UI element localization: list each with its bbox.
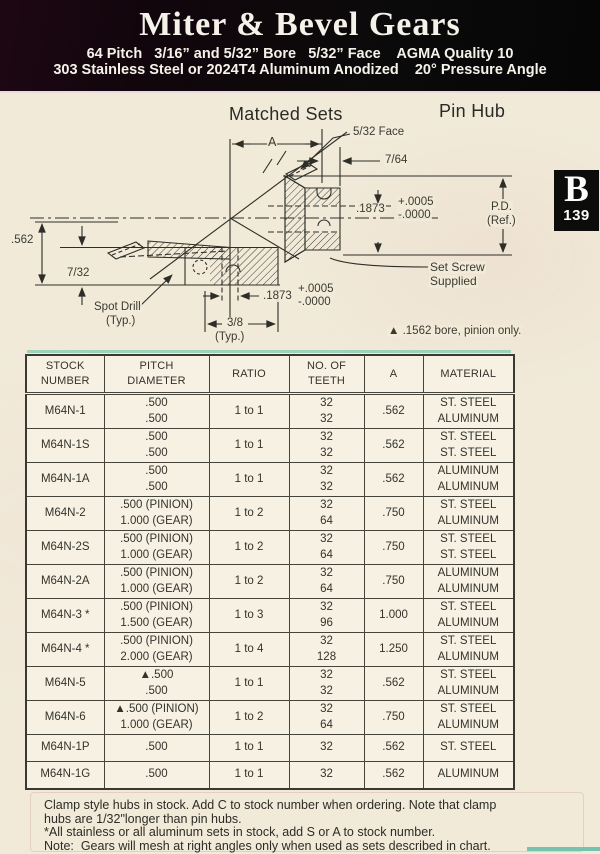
cell-pitch-diameter: ▲.500 .500 xyxy=(104,667,209,701)
cell-a: .750 xyxy=(364,701,423,735)
label-bore-tol-minus-lower: -.0000 xyxy=(297,296,332,308)
cell-teeth: 32 xyxy=(289,735,364,762)
label-pinion-bore-note: ▲ .1562 bore, pinion only. xyxy=(387,325,522,337)
cell-ratio: 1 to 1 xyxy=(209,667,289,701)
cell-pitch-diameter: .500 (PINION) 2.000 (GEAR) xyxy=(104,633,209,667)
technical-drawing: Matched SetsPin Hub5/32 FaceA7/64.1873+.… xyxy=(0,95,600,353)
cell-stock-number: M64N-3 * xyxy=(26,599,104,633)
table-row: M64N-1P.5001 to 132.562ST. STEEL xyxy=(26,735,514,762)
cell-pitch-diameter: .500 (PINION) 1.000 (GEAR) xyxy=(104,565,209,599)
col-ratio: RATIO xyxy=(209,355,289,394)
label-face-dim: 5/32 Face xyxy=(352,126,405,138)
label-hub-proj-dim: 7/64 xyxy=(384,154,408,166)
cell-teeth: 32 128 xyxy=(289,633,364,667)
cell-teeth: 32 xyxy=(289,762,364,790)
cell-material: ST. STEEL ALUMINUM xyxy=(423,394,514,429)
cell-ratio: 1 to 2 xyxy=(209,701,289,735)
label-set-screw-label-1: Set Screw xyxy=(429,261,486,274)
cell-material: ST. STEEL ALUMINUM xyxy=(423,599,514,633)
cell-a: .562 xyxy=(364,667,423,701)
header-banner: Miter & Bevel Gears 64 Pitch 3/16” and 5… xyxy=(0,0,600,93)
cell-a: 1.000 xyxy=(364,599,423,633)
table-row: M64N-2A.500 (PINION) 1.000 (GEAR)1 to 23… xyxy=(26,565,514,599)
table-row: M64N-2S.500 (PINION) 1.000 (GEAR)1 to 23… xyxy=(26,531,514,565)
cell-ratio: 1 to 2 xyxy=(209,497,289,531)
table-row: M64N-1.500 .5001 to 132 32.562ST. STEEL … xyxy=(26,394,514,429)
table-row: M64N-1A.500 .5001 to 132 32.562ALUMINUM … xyxy=(26,463,514,497)
label-bore-tol-plus-upper: +.0005 xyxy=(397,196,435,208)
cell-material: ALUMINUM ALUMINUM xyxy=(423,463,514,497)
label-a-dim: A xyxy=(267,136,277,150)
label-matched-sets-title: Matched Sets xyxy=(228,105,344,124)
cell-stock-number: M64N-5 xyxy=(26,667,104,701)
cell-ratio: 1 to 1 xyxy=(209,762,289,790)
cell-pitch-diameter: .500 .500 xyxy=(104,463,209,497)
label-pin-hub-title: Pin Hub xyxy=(438,102,506,121)
cell-a: .750 xyxy=(364,565,423,599)
col-pitch-diameter: PITCH DIAMETER xyxy=(104,355,209,394)
cell-ratio: 1 to 1 xyxy=(209,735,289,762)
cell-pitch-diameter: .500 xyxy=(104,735,209,762)
cell-teeth: 32 32 xyxy=(289,429,364,463)
cell-teeth: 32 32 xyxy=(289,667,364,701)
catalog-page: { "header": { "title": "Miter & Bevel Ge… xyxy=(0,0,600,852)
cell-pitch-diameter: ▲.500 (PINION) 1.000 (GEAR) xyxy=(104,701,209,735)
label-od-dim: .562 xyxy=(10,234,34,246)
label-hub-height-dim: 7/32 xyxy=(66,267,90,279)
label-bore-dim-upper: .1873 xyxy=(355,203,386,215)
cell-ratio: 1 to 1 xyxy=(209,429,289,463)
note-stainless-aluminum: *All stainless or all aluminum sets in s… xyxy=(44,826,554,840)
table-row: M64N-3 *.500 (PINION) 1.500 (GEAR)1 to 3… xyxy=(26,599,514,633)
cell-material: ST. STEEL ST. STEEL xyxy=(423,429,514,463)
cell-material: ST. STEEL xyxy=(423,735,514,762)
table-row: M64N-1S.500 .5001 to 132 32.562ST. STEEL… xyxy=(26,429,514,463)
cell-teeth: 32 64 xyxy=(289,701,364,735)
cell-ratio: 1 to 1 xyxy=(209,463,289,497)
label-spot-drill-typ: (Typ.) xyxy=(105,315,136,327)
cell-stock-number: M64N-1 xyxy=(26,394,104,429)
label-pd-ref-label: (Ref.) xyxy=(486,215,517,227)
label-bore-tol-plus-lower: +.0005 xyxy=(297,283,335,295)
cell-material: ST. STEEL ST. STEEL xyxy=(423,531,514,565)
cell-ratio: 1 to 1 xyxy=(209,394,289,429)
cell-stock-number: M64N-2 xyxy=(26,497,104,531)
table-row: M64N-5▲.500 .5001 to 132 32.562ST. STEEL… xyxy=(26,667,514,701)
footnotes: Clamp style hubs in stock. Add C to stoc… xyxy=(44,799,554,854)
table-body: M64N-1.500 .5001 to 132 32.562ST. STEEL … xyxy=(26,394,514,790)
table-header: STOCK NUMBER PITCH DIAMETER RATIO NO. OF… xyxy=(26,355,514,394)
page-title: Miter & Bevel Gears xyxy=(0,0,600,43)
header-spec-line-1: 64 Pitch 3/16” and 5/32” Bore 5/32” Face… xyxy=(0,46,600,63)
note-clamp-hubs-1: Clamp style hubs in stock. Add C to stoc… xyxy=(44,799,554,813)
label-bore-dim-lower: .1873 xyxy=(262,290,293,302)
header-spec-line-2: 303 Stainless Steel or 2024T4 Aluminum A… xyxy=(0,62,600,79)
gear-spec-table: STOCK NUMBER PITCH DIAMETER RATIO NO. OF… xyxy=(25,354,515,790)
cell-stock-number: M64N-1S xyxy=(26,429,104,463)
label-set-screw-label-2: Supplied xyxy=(429,275,478,288)
cell-ratio: 1 to 4 xyxy=(209,633,289,667)
label-hub-width-typ: (Typ.) xyxy=(214,331,245,343)
cell-teeth: 32 64 xyxy=(289,565,364,599)
col-material: MATERIAL xyxy=(423,355,514,394)
cell-stock-number: M64N-1G xyxy=(26,762,104,790)
col-a: A xyxy=(364,355,423,394)
scan-artifact-bottom-edge xyxy=(527,847,600,851)
table-row: M64N-6▲.500 (PINION) 1.000 (GEAR)1 to 23… xyxy=(26,701,514,735)
cell-stock-number: M64N-1A xyxy=(26,463,104,497)
table-row: M64N-2.500 (PINION) 1.000 (GEAR)1 to 232… xyxy=(26,497,514,531)
cell-teeth: 32 64 xyxy=(289,497,364,531)
table-row: M64N-4 *.500 (PINION) 2.000 (GEAR)1 to 4… xyxy=(26,633,514,667)
cell-pitch-diameter: .500 .500 xyxy=(104,394,209,429)
cell-material: ST. STEEL ALUMINUM xyxy=(423,701,514,735)
label-spot-drill-label: Spot Drill xyxy=(93,301,142,313)
cell-ratio: 1 to 3 xyxy=(209,599,289,633)
cell-a: .562 xyxy=(364,762,423,790)
cell-teeth: 32 32 xyxy=(289,394,364,429)
cell-pitch-diameter: .500 (PINION) 1.500 (GEAR) xyxy=(104,599,209,633)
cell-stock-number: M64N-1P xyxy=(26,735,104,762)
label-bore-tol-minus-upper: -.0000 xyxy=(397,209,432,221)
cell-stock-number: M64N-2S xyxy=(26,531,104,565)
cell-a: .750 xyxy=(364,497,423,531)
cell-pitch-diameter: .500 (PINION) 1.000 (GEAR) xyxy=(104,531,209,565)
cell-a: .562 xyxy=(364,429,423,463)
cell-stock-number: M64N-4 * xyxy=(26,633,104,667)
note-clamp-hubs-2: hubs are 1/32"longer than pin hubs. xyxy=(44,813,554,827)
cell-a: .750 xyxy=(364,531,423,565)
cell-stock-number: M64N-6 xyxy=(26,701,104,735)
col-no-of-teeth: NO. OF TEETH xyxy=(289,355,364,394)
cell-ratio: 1 to 2 xyxy=(209,531,289,565)
cell-pitch-diameter: .500 .500 xyxy=(104,429,209,463)
cell-material: ST. STEEL ALUMINUM xyxy=(423,633,514,667)
cell-teeth: 32 96 xyxy=(289,599,364,633)
cell-a: .562 xyxy=(364,463,423,497)
cell-teeth: 32 32 xyxy=(289,463,364,497)
label-hub-width-dim: 3/8 xyxy=(226,317,244,329)
cell-pitch-diameter: .500 (PINION) 1.000 (GEAR) xyxy=(104,497,209,531)
table-row: M64N-1G.5001 to 132.562ALUMINUM xyxy=(26,762,514,790)
cell-a: .562 xyxy=(364,735,423,762)
cell-material: ALUMINUM xyxy=(423,762,514,790)
cell-teeth: 32 64 xyxy=(289,531,364,565)
cell-stock-number: M64N-2A xyxy=(26,565,104,599)
cell-a: .562 xyxy=(364,394,423,429)
cell-material: ALUMINUM ALUMINUM xyxy=(423,565,514,599)
cell-ratio: 1 to 2 xyxy=(209,565,289,599)
col-stock-number: STOCK NUMBER xyxy=(26,355,104,394)
scan-artifact-table-top xyxy=(27,350,511,353)
cell-material: ST. STEEL ALUMINUM xyxy=(423,497,514,531)
cell-material: ST. STEEL ALUMINUM xyxy=(423,667,514,701)
cell-pitch-diameter: .500 xyxy=(104,762,209,790)
cell-a: 1.250 xyxy=(364,633,423,667)
label-pd-label: P.D. xyxy=(490,201,513,213)
